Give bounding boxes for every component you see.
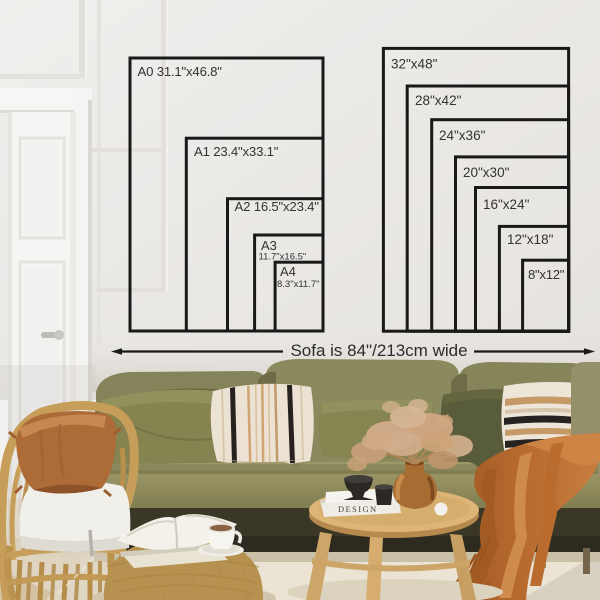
- svg-text:20"x30": 20"x30": [463, 165, 510, 180]
- svg-text:A1 23.4"x33.1": A1 23.4"x33.1": [194, 144, 279, 159]
- svg-text:24"x36": 24"x36": [439, 128, 486, 143]
- svg-text:DESIGN: DESIGN: [338, 504, 378, 514]
- svg-text:28"x42": 28"x42": [415, 93, 462, 108]
- svg-text:8.3"x11.7": 8.3"x11.7": [277, 279, 320, 290]
- svg-text:8"x12": 8"x12": [528, 267, 565, 282]
- svg-text:A2 16.5"x23.4": A2 16.5"x23.4": [235, 199, 320, 214]
- svg-text:Sofa is 84"/213cm wide: Sofa is 84"/213cm wide: [290, 341, 467, 360]
- svg-text:16"x24": 16"x24": [483, 197, 530, 212]
- svg-text:32"x48": 32"x48": [391, 57, 438, 72]
- svg-text:A4: A4: [280, 264, 296, 279]
- svg-text:A0 31.1"x46.8": A0 31.1"x46.8": [138, 64, 223, 79]
- svg-text:11.7"x16.5": 11.7"x16.5": [259, 252, 307, 263]
- svg-text:12"x18": 12"x18": [507, 232, 554, 247]
